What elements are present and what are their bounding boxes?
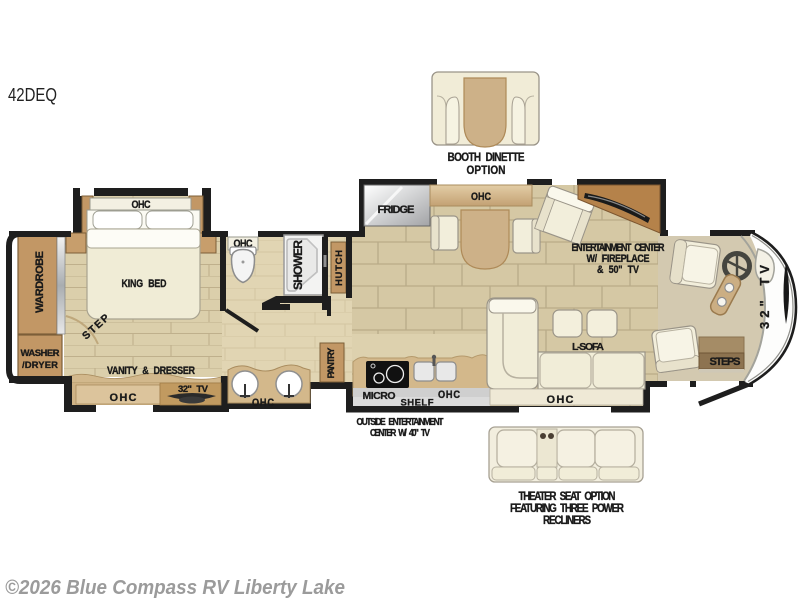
svg-text:PANTRY: PANTRY xyxy=(326,347,337,379)
svg-text:THEATER SEAT OPTION: THEATER SEAT OPTION xyxy=(519,490,616,503)
svg-text:FEATURING THREE POWER: FEATURING THREE POWER xyxy=(510,502,624,515)
svg-text:©2026 Blue Compass RV Liberty: ©2026 Blue Compass RV Liberty Lake xyxy=(5,577,345,599)
svg-text:OHC: OHC xyxy=(252,397,275,409)
svg-text:MICRO: MICRO xyxy=(363,390,396,402)
svg-text:WARDROBE: WARDROBE xyxy=(34,251,46,313)
svg-text:OPTION: OPTION xyxy=(467,164,506,177)
svg-text:& 50" TV: & 50" TV xyxy=(597,264,639,276)
svg-text:FRIDGE: FRIDGE xyxy=(378,204,415,216)
svg-text:WASHER: WASHER xyxy=(21,348,60,359)
svg-text:SHELF: SHELF xyxy=(401,398,434,409)
svg-text:STEPS: STEPS xyxy=(710,356,741,368)
svg-text:OHC: OHC xyxy=(547,394,574,406)
svg-text:OUTSIDE ENTERTAINMENT: OUTSIDE ENTERTAINMENT xyxy=(357,416,444,427)
svg-text:OHC: OHC xyxy=(132,199,151,211)
svg-text:HUTCH: HUTCH xyxy=(334,250,345,286)
svg-text:OHC: OHC xyxy=(471,191,491,203)
svg-text:BOOTH DINETTE: BOOTH DINETTE xyxy=(448,151,525,164)
svg-text:RECLINERS: RECLINERS xyxy=(543,514,591,527)
svg-text:OHC: OHC xyxy=(110,392,137,404)
svg-text:/DRYER: /DRYER xyxy=(22,360,58,371)
svg-text:OHC: OHC xyxy=(438,389,461,401)
svg-text:L-SOFA: L-SOFA xyxy=(572,341,604,353)
svg-text:CENTER W/ 40" TV: CENTER W/ 40" TV xyxy=(370,428,430,439)
svg-text:VANITY & DRESSER: VANITY & DRESSER xyxy=(107,365,195,377)
svg-text:42DEQ: 42DEQ xyxy=(8,84,57,105)
svg-text:SHOWER: SHOWER xyxy=(291,240,305,290)
svg-text:KING BED: KING BED xyxy=(122,278,167,290)
